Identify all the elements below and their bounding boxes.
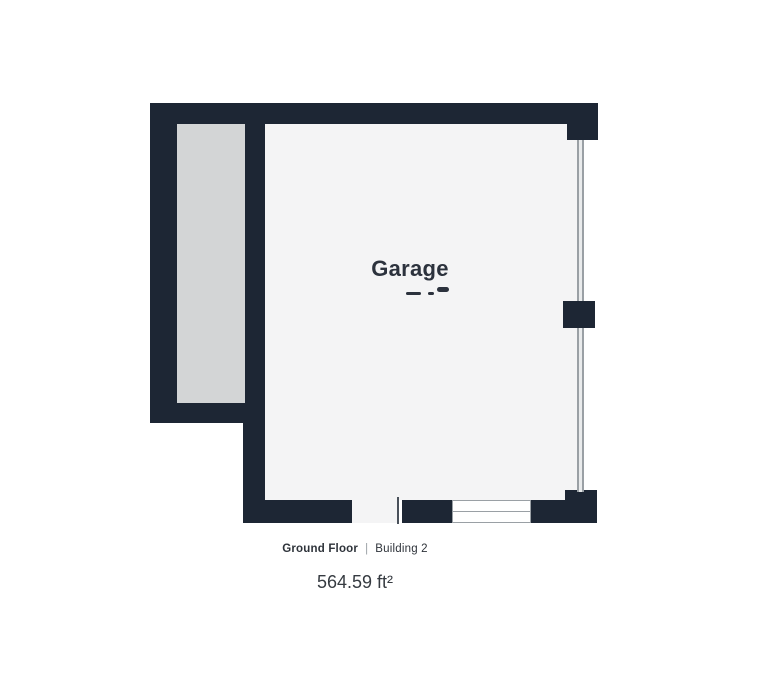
door-jamb-line — [397, 497, 399, 524]
floor-caption-name: Ground Floor — [282, 543, 358, 555]
wall-bottom-right-segment — [531, 500, 565, 523]
window-block-top — [567, 124, 598, 140]
clipped-text-remnant — [406, 292, 421, 295]
building-caption: Building 2 — [375, 543, 428, 555]
floorplan: Garage Ground Floor|Building 2 564.59 ft… — [0, 0, 784, 676]
window-block-middle — [563, 301, 595, 328]
wall-top — [150, 103, 598, 124]
storage-room — [177, 124, 245, 403]
garage-floor — [265, 124, 578, 500]
garage-door-divider — [453, 511, 530, 512]
caption-separator: | — [365, 543, 368, 555]
wall-bottom-mid-segment — [402, 500, 452, 523]
wall-storage-right — [245, 124, 265, 403]
wall-opening — [352, 500, 398, 523]
wall-storage-bottom — [150, 403, 265, 423]
area-caption: 564.59 ft² — [155, 572, 555, 593]
room-label: Garage — [310, 256, 510, 282]
clipped-text-remnant — [428, 292, 434, 295]
corner-block-bottom-right — [565, 490, 597, 523]
wall-bottom-left-segment — [243, 500, 352, 523]
clipped-text-remnant — [437, 287, 449, 292]
floor-caption: Ground Floor|Building 2 — [155, 543, 555, 555]
garage-door-panel — [452, 500, 531, 523]
wall-left — [150, 103, 177, 423]
